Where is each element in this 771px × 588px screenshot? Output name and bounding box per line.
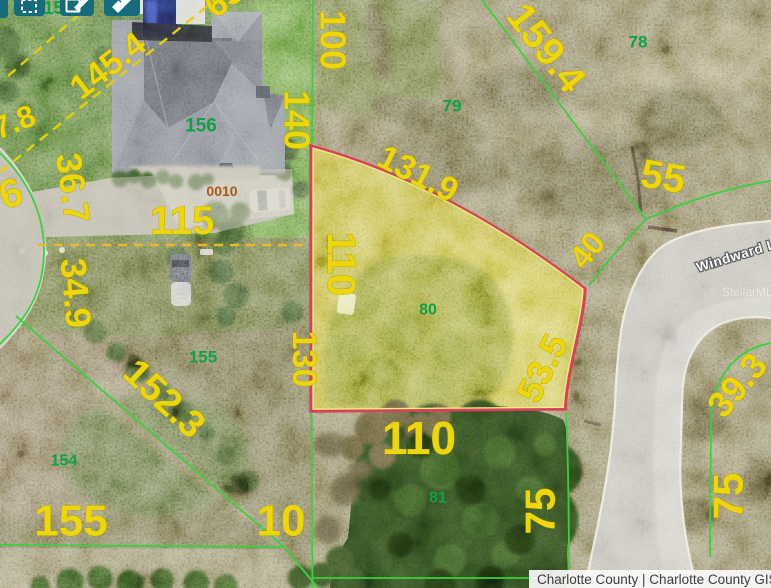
- svg-text:34.9: 34.9: [53, 256, 100, 329]
- svg-text:140: 140: [277, 90, 318, 150]
- svg-text:155: 155: [189, 348, 217, 367]
- svg-text:110: 110: [319, 232, 363, 297]
- svg-text:80: 80: [419, 302, 437, 319]
- svg-text:115: 115: [150, 199, 215, 243]
- svg-text:10: 10: [257, 497, 306, 546]
- svg-text:55: 55: [637, 151, 688, 202]
- svg-text:81: 81: [429, 490, 447, 507]
- svg-text:155: 155: [34, 497, 107, 546]
- svg-text:130: 130: [285, 331, 323, 388]
- svg-text:79: 79: [443, 97, 462, 116]
- svg-text:100: 100: [313, 10, 354, 70]
- svg-text:Charlotte County | Charlotte C: Charlotte County | Charlotte County GIS: [537, 572, 771, 587]
- svg-text:78: 78: [629, 33, 648, 52]
- svg-text:156: 156: [185, 116, 217, 137]
- svg-text:75: 75: [517, 488, 564, 535]
- svg-text:0010: 0010: [206, 183, 237, 199]
- svg-text:110: 110: [382, 412, 456, 464]
- svg-text:154: 154: [51, 453, 78, 470]
- svg-text:75: 75: [705, 473, 752, 520]
- svg-text:StellarMLS: StellarMLS: [722, 285, 771, 299]
